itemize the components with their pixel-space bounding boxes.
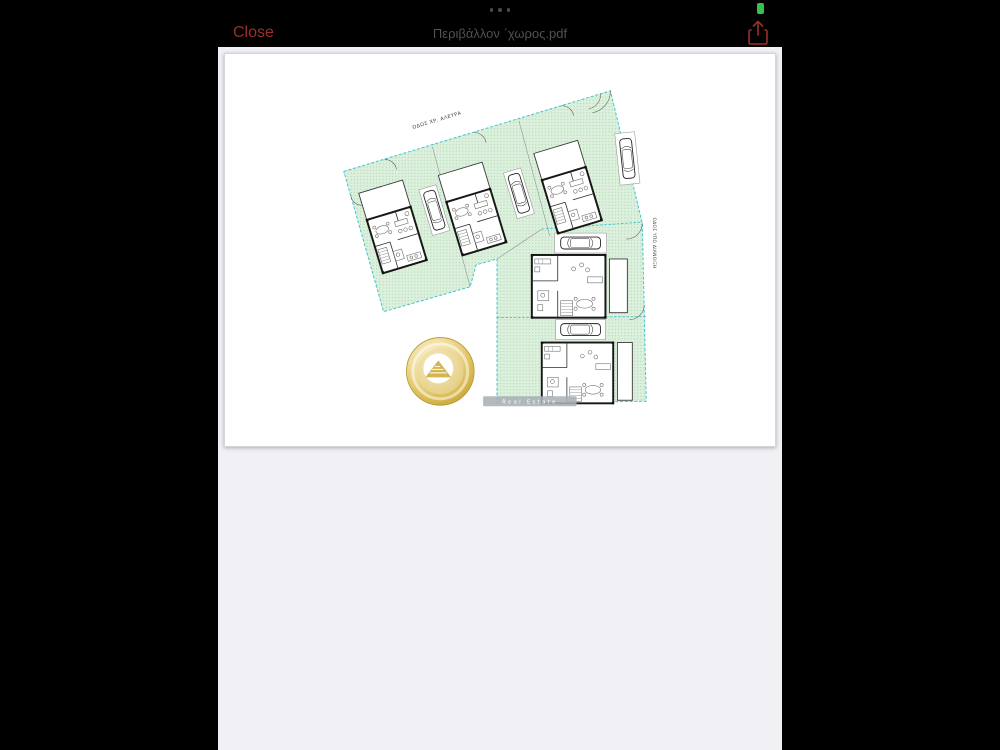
watermark-strip: Real Estate (483, 396, 577, 406)
street-label-right: ΟΔΟΣ ΥΠΟ ΔΙΑΝΟΙΞΗ (651, 217, 657, 268)
car-4 (561, 237, 601, 249)
veranda-house-4 (609, 259, 627, 313)
pdf-viewer-scroll-area[interactable]: ΟΔΟΣ ΧΡ. ΑΛΕΥΡΑ ΟΔΟΣ ΥΠΟ ΔΙΑΝΟΙΞΗ Real E… (218, 47, 782, 750)
ipad-screen: Close Περιβάλλον ΄χωρος.pdf (0, 0, 1000, 750)
pdf-page[interactable]: ΟΔΟΣ ΧΡ. ΑΛΕΥΡΑ ΟΔΟΣ ΥΠΟ ΔΙΑΝΟΙΞΗ Real E… (224, 53, 776, 447)
battery-icon (757, 3, 764, 14)
multitask-ellipsis-icon[interactable] (0, 8, 1000, 26)
watermark-text: Real Estate (502, 400, 557, 406)
share-icon (745, 19, 771, 46)
house-5 (541, 342, 614, 405)
site-plan-drawing: ΟΔΟΣ ΧΡ. ΑΛΕΥΡΑ ΟΔΟΣ ΥΠΟ ΔΙΑΝΟΙΞΗ Real E… (225, 54, 775, 446)
house-4 (531, 254, 607, 319)
developer-logo (406, 338, 474, 406)
car-5 (561, 324, 601, 336)
veranda-house-5 (617, 343, 632, 401)
share-button[interactable] (745, 19, 771, 46)
document-title: Περιβάλλον ΄χωρος.pdf (0, 26, 1000, 41)
street-label-top: ΟΔΟΣ ΧΡ. ΑΛΕΥΡΑ (412, 110, 463, 130)
top-toolbar: Close Περιβάλλον ΄χωρος.pdf (0, 0, 1000, 47)
